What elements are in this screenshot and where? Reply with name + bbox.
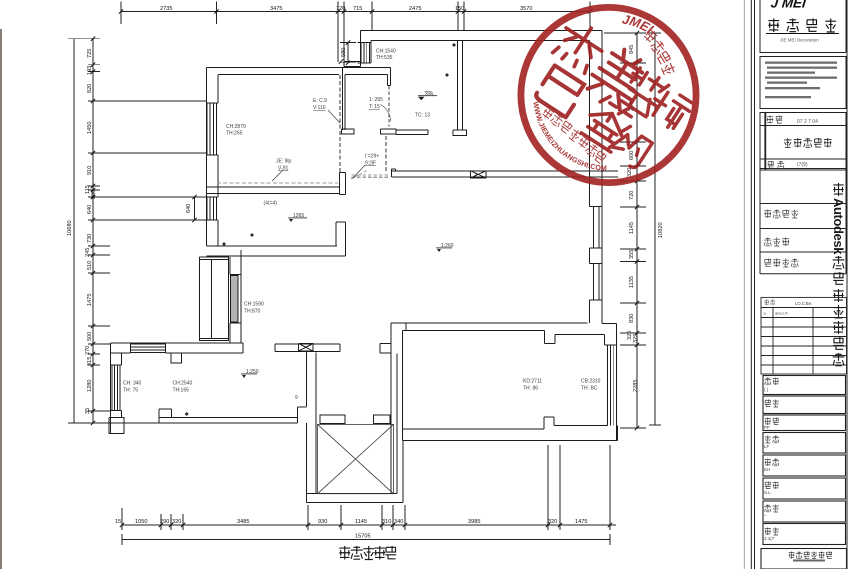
svg-text:CH:2540: CH:2540 [173, 381, 193, 387]
svg-text:JIE MEI Decoration: JIE MEI Decoration [780, 38, 819, 43]
svg-text:10820: 10820 [658, 222, 664, 238]
svg-text:(4(=4): (4(=4) [264, 201, 278, 207]
svg-text:TH:870: TH:870 [244, 309, 261, 315]
svg-text:930: 930 [318, 519, 327, 525]
svg-text:LF: LF [764, 444, 770, 449]
svg-text:9: 9 [295, 395, 298, 401]
svg-text:200: 200 [91, 190, 97, 199]
svg-text:CH:1590: CH:1590 [244, 302, 264, 308]
svg-text:325: 325 [633, 334, 639, 343]
svg-text:245: 245 [85, 248, 91, 257]
svg-text:--: -- [764, 513, 767, 518]
svg-text:820: 820 [87, 84, 93, 93]
svg-text:TH: 86: TH: 86 [523, 386, 538, 392]
svg-text:T: 15: T: 15 [369, 104, 380, 110]
svg-text:510: 510 [87, 261, 93, 270]
svg-text:340: 340 [394, 519, 403, 525]
svg-text:355: 355 [629, 250, 635, 259]
svg-text:270: 270 [85, 346, 91, 355]
svg-text:2735: 2735 [160, 6, 172, 12]
svg-text:2475: 2475 [409, 6, 421, 12]
svg-text:580: 580 [341, 48, 347, 57]
svg-text:V:110: V:110 [313, 105, 326, 111]
svg-text:1280: 1280 [87, 380, 93, 392]
svg-text:Autodesk: Autodesk [831, 198, 846, 255]
svg-text:TH:165: TH:165 [173, 388, 190, 394]
svg-text:07 2 7 04: 07 2 7 04 [797, 119, 818, 125]
svg-text:1: 265: 1: 265 [369, 97, 383, 103]
svg-text:845: 845 [629, 45, 635, 54]
svg-text:LO.C.Be:: LO.C.Be: [795, 301, 812, 306]
svg-text:1135: 1135 [629, 276, 635, 288]
svg-text:310: 310 [382, 519, 391, 525]
svg-text:725: 725 [87, 49, 93, 58]
svg-text:290: 290 [160, 519, 169, 525]
svg-text:1:250: 1:250 [246, 369, 259, 375]
svg-text:640: 640 [87, 205, 93, 214]
svg-text:1:260: 1:260 [441, 243, 454, 249]
svg-text:500: 500 [87, 332, 93, 341]
svg-text:320: 320 [627, 168, 633, 177]
svg-text:V-91: V-91 [278, 166, 289, 172]
svg-text:S.L: S.L [764, 490, 771, 495]
svg-text:1:1(7: 1:1(7 [764, 536, 775, 541]
svg-text:3570: 3570 [520, 6, 532, 12]
svg-text:910: 910 [87, 166, 93, 175]
svg-text:150: 150 [455, 6, 464, 12]
svg-text:720: 720 [629, 191, 635, 200]
svg-text:TC: 13: TC: 13 [415, 113, 430, 119]
svg-text:CH:1540: CH:1540 [376, 49, 396, 55]
svg-text:320: 320 [172, 519, 181, 525]
svg-text:715: 715 [353, 6, 362, 12]
svg-text:CB:2310: CB:2310 [581, 379, 601, 385]
svg-text:600: 600 [629, 151, 635, 160]
svg-text:X8s: X8s [425, 91, 434, 97]
svg-text:KH: KH [764, 467, 770, 472]
svg-text:(7(9): (7(9) [797, 162, 808, 168]
svg-text:640: 640 [186, 204, 192, 213]
svg-text:1475: 1475 [575, 519, 587, 525]
svg-text:3485: 3485 [237, 519, 249, 525]
svg-text:3985: 3985 [468, 519, 480, 525]
svg-text:15: 15 [115, 519, 121, 525]
svg-text:I:=29+: I:=29+ [365, 154, 379, 160]
svg-text:1265: 1265 [293, 213, 304, 219]
svg-text:1450: 1450 [87, 122, 93, 134]
svg-text:830: 830 [629, 314, 635, 323]
svg-text:15705: 15705 [355, 534, 371, 540]
svg-text:( ): ( ) [764, 387, 769, 392]
svg-text:1145: 1145 [629, 222, 635, 234]
svg-text:1145: 1145 [355, 519, 367, 525]
svg-text:TH:265: TH:265 [226, 131, 243, 137]
svg-text:315: 315 [87, 357, 93, 366]
svg-text:193: 193 [87, 66, 93, 75]
svg-text:120: 120 [336, 6, 345, 12]
svg-text:2285: 2285 [633, 380, 639, 392]
svg-text:KD:2711: KD:2711 [523, 379, 542, 385]
svg-text:PF: PF [764, 425, 770, 430]
svg-text:35: 35 [85, 408, 91, 414]
svg-text:730: 730 [87, 234, 93, 243]
svg-text:E: C.9: E: C.9 [313, 98, 327, 104]
svg-text:1475: 1475 [87, 294, 93, 306]
svg-text:JE: 9lp: JE: 9lp [276, 159, 292, 165]
svg-text:TH:535: TH:535 [376, 55, 393, 61]
svg-text:3475: 3475 [270, 6, 282, 12]
svg-text:10680: 10680 [67, 220, 73, 236]
svg-text:TH: BC: TH: BC [581, 386, 598, 392]
svg-text:CH: 340: CH: 340 [123, 381, 142, 387]
svg-text:CH:2870: CH:2870 [226, 124, 246, 130]
svg-text:320: 320 [548, 519, 557, 525]
svg-text:J MEI: J MEI [770, 0, 807, 10]
svg-text:1050: 1050 [135, 519, 147, 525]
svg-text:9:2lF: 9:2lF [365, 161, 376, 167]
svg-text:anv.c.fi: anv.c.fi [775, 311, 787, 316]
svg-text:TH: 75: TH: 75 [123, 388, 138, 394]
